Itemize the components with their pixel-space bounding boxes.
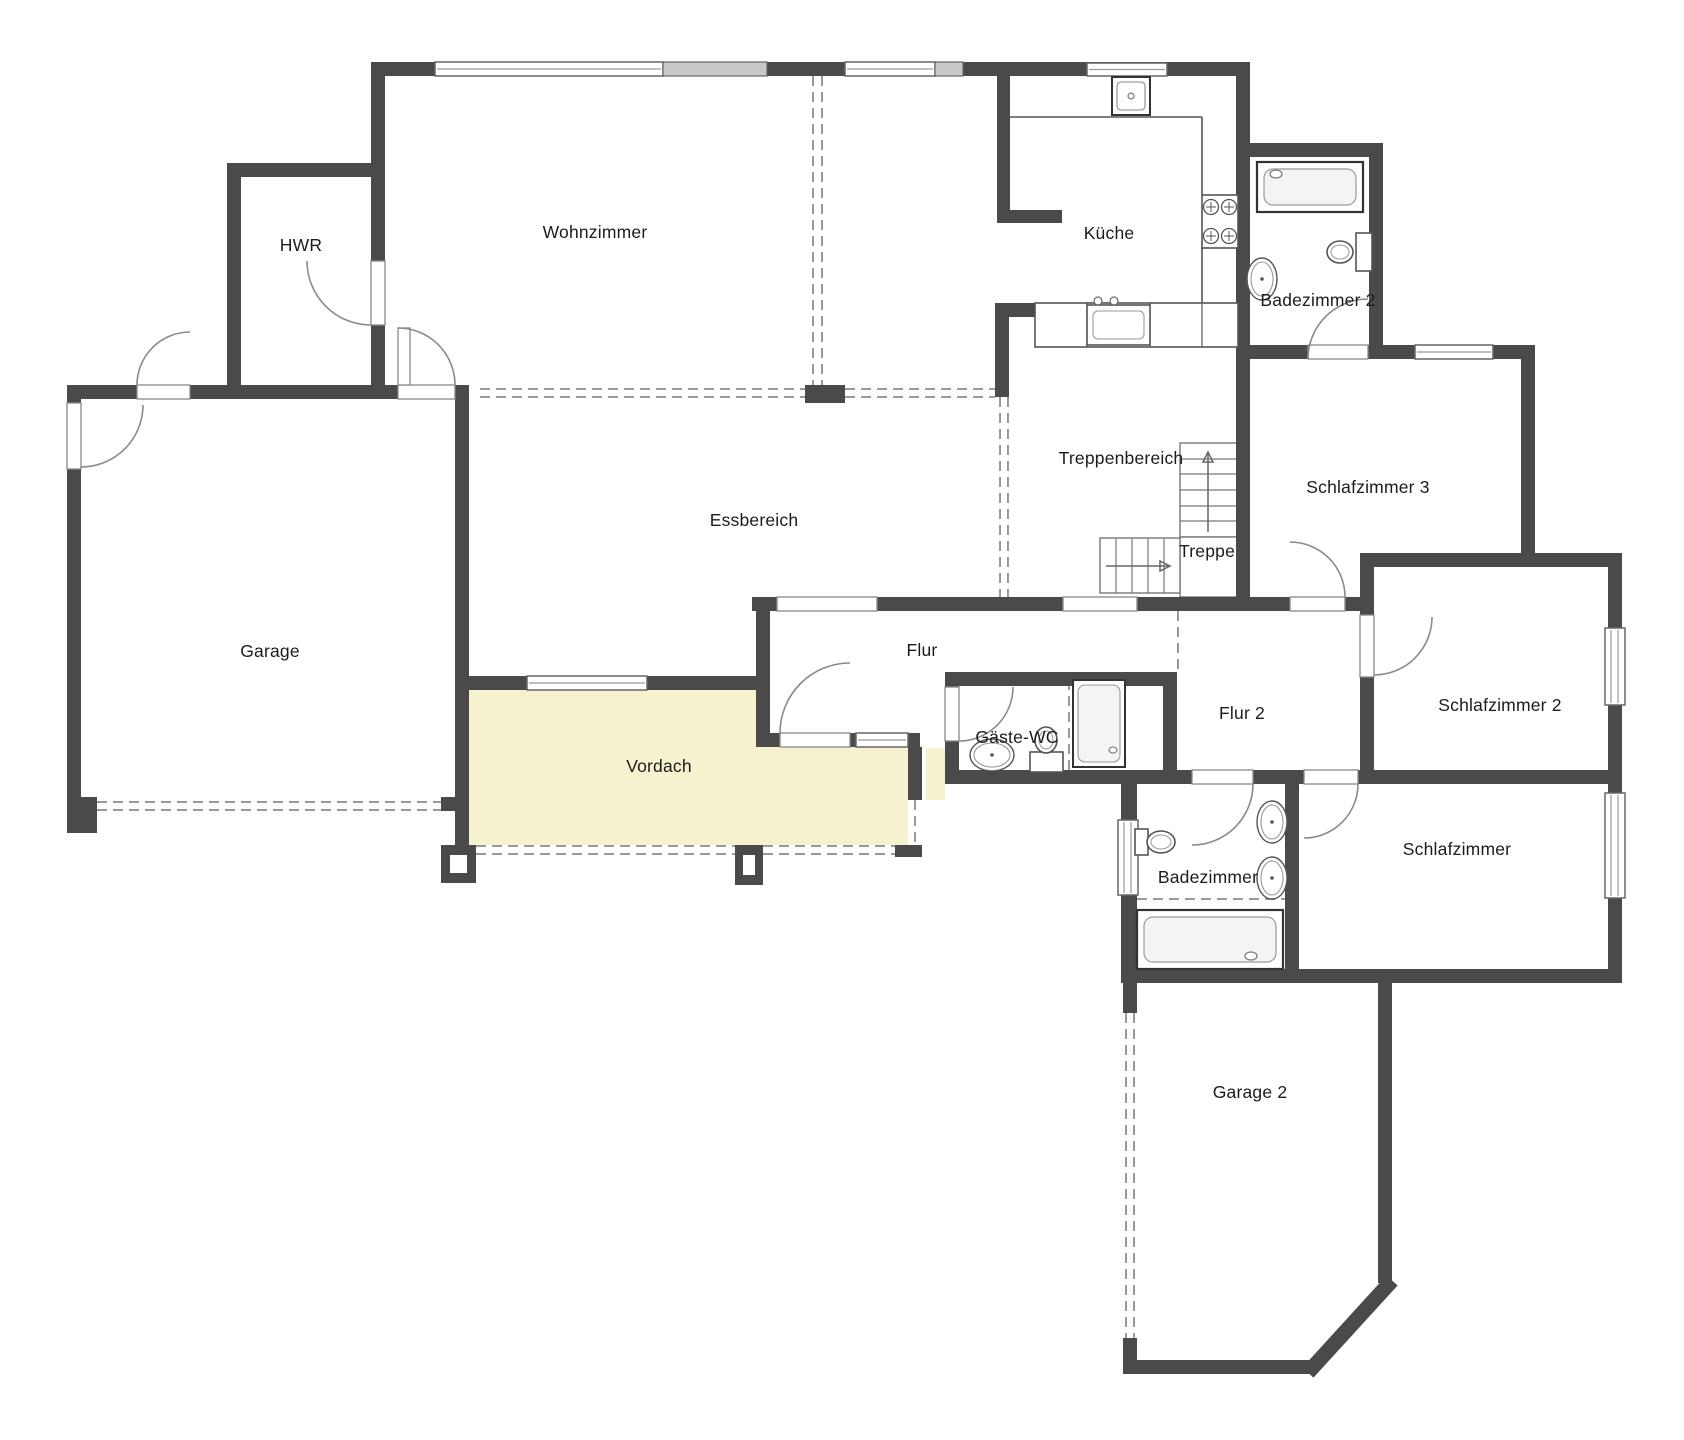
wall [1345,597,1374,611]
room-label-schlafzimmer-3: Schlafzimmer 3 [1306,477,1429,497]
post [67,797,97,833]
door-sill [67,403,81,469]
wall [945,672,1177,686]
wall [756,611,770,747]
wall [877,597,1063,611]
wall [1243,597,1290,611]
floorplan-page: HWRWohnzimmerKücheBadezimmer 2Treppenber… [0,0,1684,1440]
post [895,845,922,857]
shower-drain [1109,747,1117,753]
wall [1123,983,1137,1013]
floorplan-canvas: HWRWohnzimmerKücheBadezimmer 2Treppenber… [0,0,1684,1440]
door-sill [945,687,959,741]
wall [1163,672,1177,784]
room-label-vordach: Vordach [626,756,692,776]
wall [1521,345,1535,567]
counter-faucet [1094,297,1102,305]
wall [371,62,385,399]
wall [1358,770,1622,784]
door-sill [1192,770,1253,784]
bathtub-faucet [1245,952,1257,960]
toilet-tank [1135,829,1148,855]
toilet-tank [1356,233,1372,271]
room-label-garage-2: Garage 2 [1213,1082,1288,1102]
wall [1121,969,1622,983]
window [1605,793,1625,898]
room-label-badezimmer: Badezimmer [1158,867,1258,887]
room-label-essbereich: Essbereich [710,510,799,530]
room-label-gaeste-wc: Gäste-WC [975,727,1058,747]
room-label-schlafzimmer: Schlafzimmer [1403,839,1511,859]
bathtub-faucet [1270,170,1282,178]
door-sill [1063,597,1137,611]
wall [1137,597,1250,611]
wall [1360,553,1622,567]
room-label-flur-2: Flur 2 [1219,703,1265,723]
wall [756,733,780,747]
post [805,385,845,403]
door-sill [137,385,190,399]
wall [455,385,469,845]
wall [469,676,527,690]
door-sill [780,733,850,747]
counter-sink-inner [1093,311,1144,339]
toilet-tank [1030,752,1063,772]
door-sill [398,385,455,399]
room-label-schlafzimmer-2: Schlafzimmer 2 [1438,695,1561,715]
wall [995,303,1009,397]
door-sill [1308,345,1368,359]
room-label-treppenbereich: Treppenbereich [1059,448,1184,468]
wall [945,672,959,687]
sink-drain [1270,876,1274,880]
wall [1123,1360,1316,1374]
door-sill [1304,770,1358,784]
wall [945,770,1192,784]
wall [908,733,920,747]
room-label-garage: Garage [240,641,300,661]
kitchen-sink-inner [1117,82,1145,110]
wall [227,163,385,177]
wall [441,797,469,811]
room-label-flur: Flur [907,640,938,660]
window [1605,628,1625,705]
toilet-bowl-inner [1331,245,1349,259]
toilet-bowl-inner [1151,835,1171,849]
door-sill [1290,597,1345,611]
sink-drain [1270,820,1274,824]
wall [908,747,922,800]
room-label-wohnzimmer: Wohnzimmer [543,222,648,242]
wall [227,163,241,399]
wall [190,385,398,399]
wall [752,597,777,611]
wall [1368,345,1415,359]
wall [647,676,756,690]
room-label-kueche: Küche [1084,223,1135,243]
counter-faucet [1110,297,1118,305]
door-leaf [398,328,410,385]
door-sill [777,597,877,611]
post-inner [743,855,755,875]
room-label-hwr: HWR [280,235,322,255]
wall [1608,553,1622,628]
door-sill [371,261,385,325]
wall [997,210,1062,223]
room-label-treppe: Treppe [1179,541,1235,561]
wall [1236,345,1308,359]
wall [997,75,1010,223]
window-gray [935,62,963,76]
post-inner [450,855,467,873]
wall [1360,677,1374,784]
wall [1121,770,1137,820]
window-gray [663,62,767,76]
wall [1378,983,1392,1283]
vordach-sliver [926,748,945,800]
wall [850,733,856,747]
door-sill [1360,615,1374,677]
plan-background [0,0,1684,1440]
room-label-badezimmer-2: Badezimmer 2 [1260,290,1375,310]
sink-drain [1260,277,1264,281]
sink-drain [990,753,994,757]
wall [1236,143,1383,157]
